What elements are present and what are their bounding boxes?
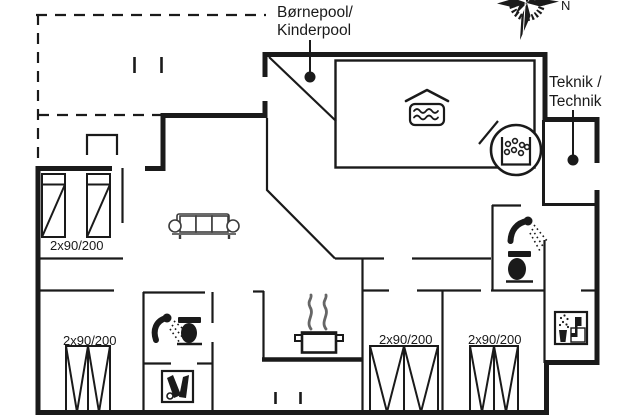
utility-icon	[555, 312, 587, 344]
technics-label-line2: Technik	[549, 93, 602, 110]
bed-label-bottom-left: 2x90/200	[63, 333, 117, 348]
technics-label: Teknik / Technik	[549, 74, 602, 110]
bed-double-bottom-right	[470, 346, 518, 412]
technics-label-line1: Teknik /	[549, 74, 602, 91]
kids-pool-marker	[305, 40, 316, 83]
bed-label-top-left: 2x90/200	[50, 238, 104, 253]
pool-icon	[406, 90, 448, 125]
toilet-icon-right	[506, 251, 533, 282]
hot-tub-icon	[491, 125, 541, 175]
shower-icon-right	[511, 217, 549, 252]
bed-double-bottom-left	[66, 346, 110, 412]
bed-double-bottom-middle	[370, 346, 438, 412]
bed-label-bottom-middle: 2x90/200	[379, 332, 433, 347]
kids-pool-label-line2: Kinderpool	[277, 22, 351, 39]
kids-pool-label-line1: Børnepool/	[277, 4, 354, 21]
bottle-cabinet-icon	[162, 371, 193, 402]
walls-interior-medium	[262, 120, 598, 360]
terrace-outline	[36, 14, 266, 168]
floor-plan-svg: Børnepool/ Kinderpool Teknik / Technik N	[0, 0, 640, 417]
sofa-icon	[169, 214, 239, 239]
wardrobe-niche-icon	[87, 135, 117, 155]
compass-rose-icon: N	[497, 0, 570, 40]
toilet-icon-middle	[177, 317, 202, 344]
stove-pot-icon	[295, 295, 343, 353]
compass-north-label: N	[561, 0, 570, 13]
bed-single-left	[42, 174, 110, 237]
bed-label-bottom-right: 2x90/200	[468, 332, 522, 347]
floor-plan: Børnepool/ Kinderpool Teknik / Technik N	[0, 0, 640, 417]
kids-pool-label: Børnepool/ Kinderpool	[277, 4, 354, 39]
